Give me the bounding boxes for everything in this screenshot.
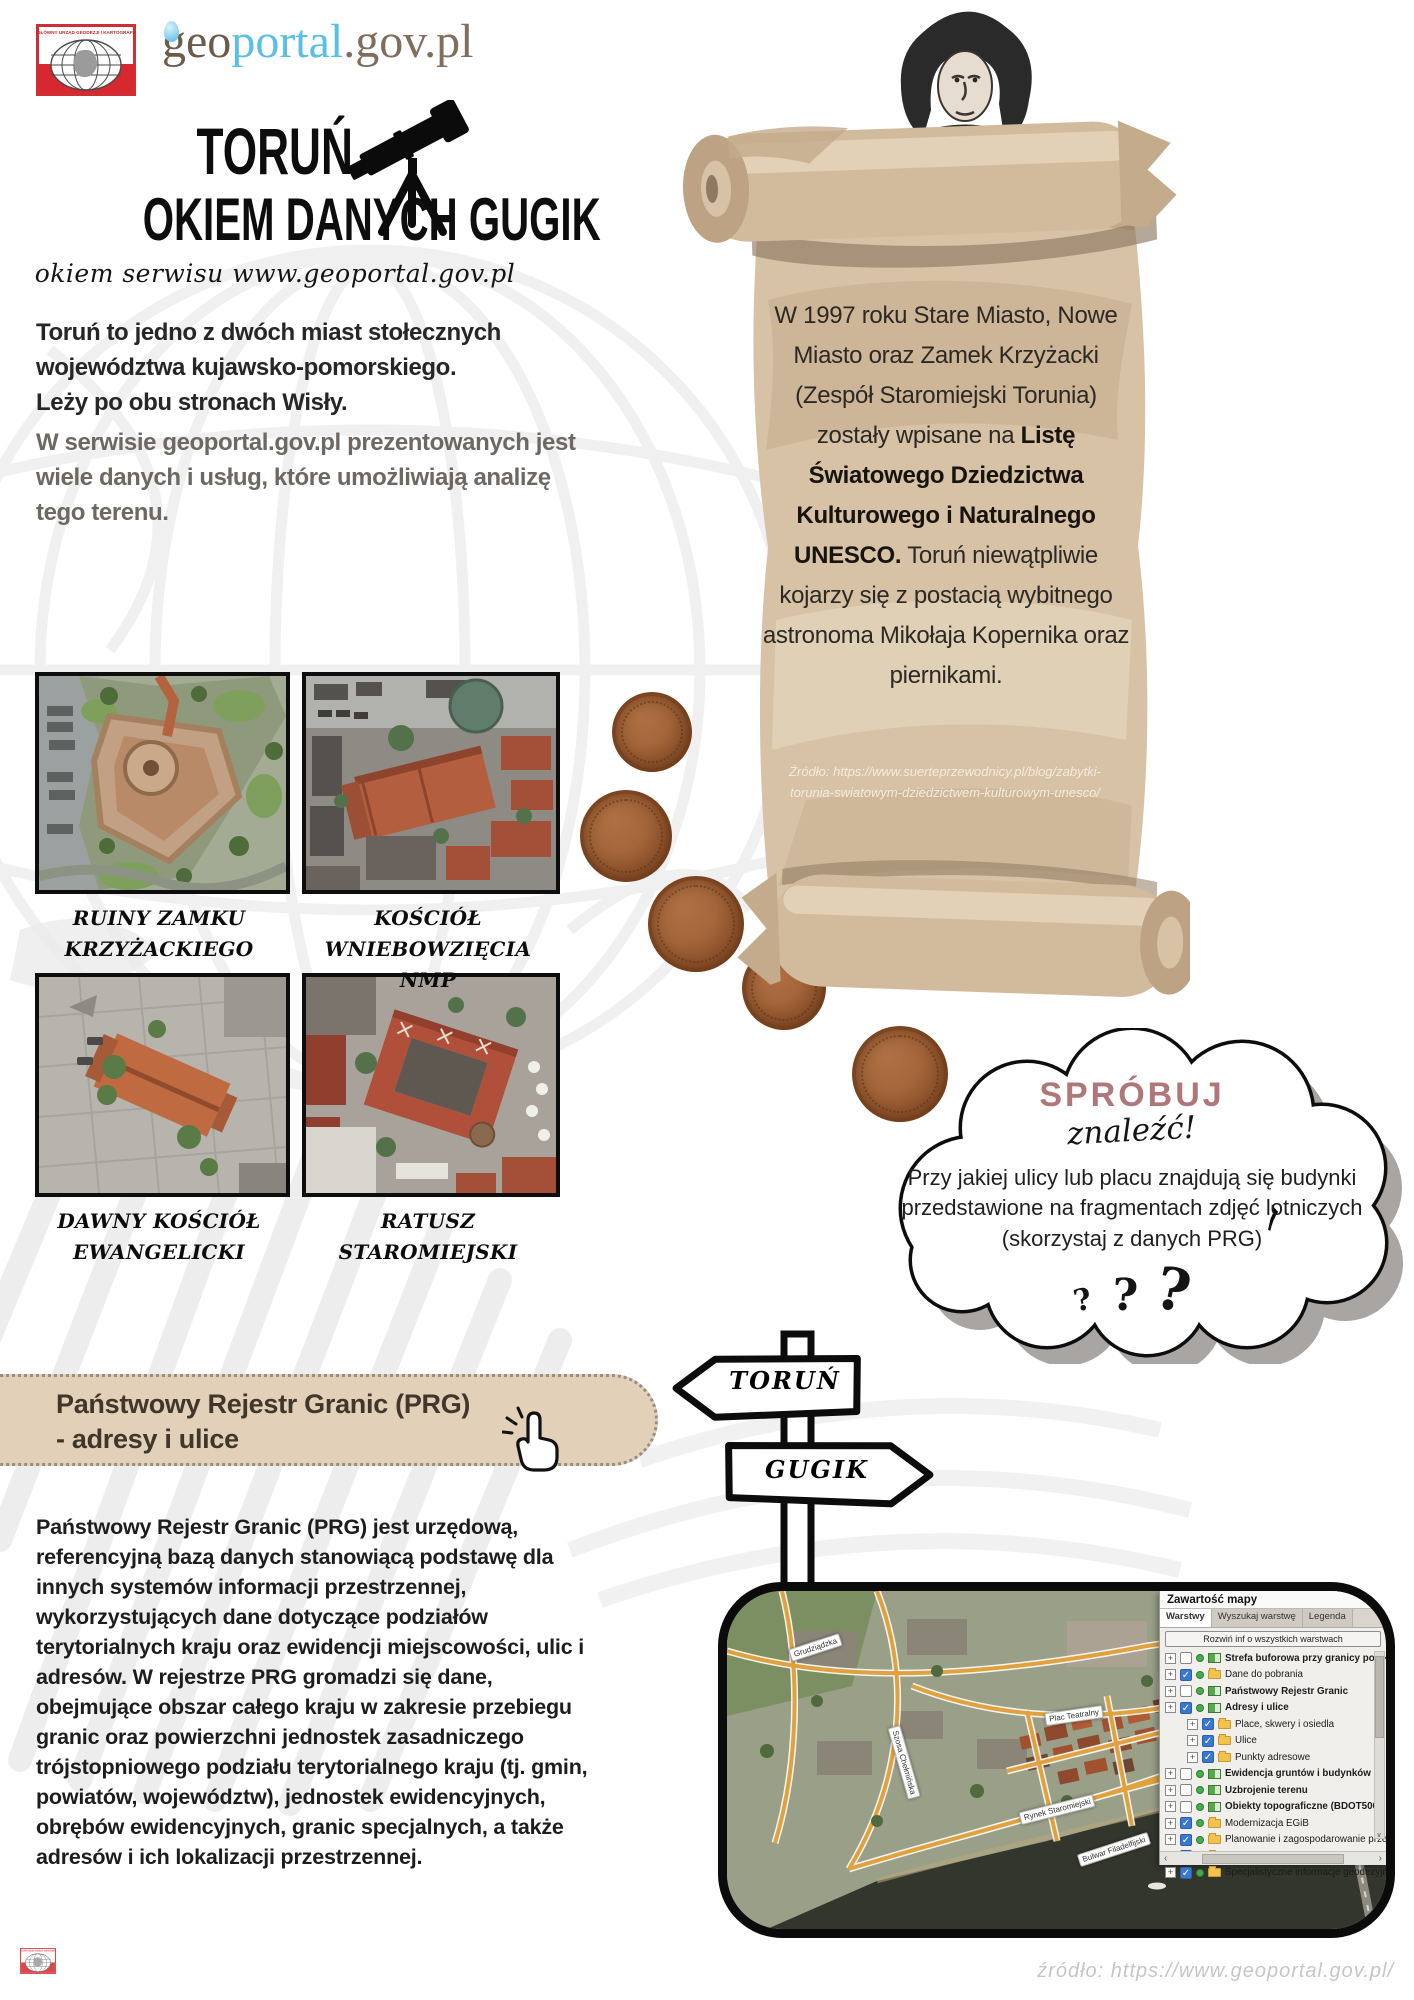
layer-label: Ewidencja gruntów i budynków bbox=[1225, 1768, 1371, 1779]
map-service-icon bbox=[1208, 1785, 1221, 1795]
layer-row[interactable]: +✓Punkty adresowe bbox=[1160, 1749, 1386, 1766]
status-dot-icon bbox=[1196, 1803, 1204, 1811]
layer-checkbox[interactable] bbox=[1180, 1784, 1192, 1796]
expander-icon[interactable]: + bbox=[1165, 1768, 1176, 1779]
map-screenshot: GrudziądzkaSzosa ChełmińskaPlac Teatraln… bbox=[718, 1582, 1395, 1938]
layer-label: Państwowy Rejestr Granic bbox=[1225, 1686, 1348, 1697]
folder-icon bbox=[1218, 1720, 1231, 1729]
scroll-right-icon[interactable]: › bbox=[1379, 1853, 1382, 1864]
infographic-page: GŁÓWNY URZĄD GEODEZJI I KARTOGRAFII geop… bbox=[0, 0, 1414, 2000]
map-service-icon bbox=[1208, 1653, 1221, 1663]
layer-checkbox[interactable]: ✓ bbox=[1202, 1735, 1214, 1747]
status-dot-icon bbox=[1196, 1770, 1204, 1778]
layer-row[interactable]: +✓Place, skwery i osiedla bbox=[1160, 1716, 1386, 1733]
aerial-photo-evangelical-church bbox=[35, 973, 290, 1197]
folder-icon bbox=[1208, 1835, 1221, 1844]
tab-wyszukaj-warstwe[interactable]: Wyszukaj warstwę bbox=[1212, 1609, 1303, 1627]
folder-icon bbox=[1208, 1868, 1221, 1877]
layer-row[interactable]: +Obiekty topograficzne (BDOT500) bbox=[1160, 1799, 1386, 1816]
intro-paragraph-1: Toruń to jedno z dwóch miast stołecznych… bbox=[36, 316, 596, 420]
aerial-photo-town-hall bbox=[302, 973, 560, 1197]
layer-checkbox[interactable]: ✓ bbox=[1202, 1718, 1214, 1730]
geoportal-wordmark: geoportal.gov.pl bbox=[162, 14, 1414, 69]
layer-row[interactable]: +Ewidencja gruntów i budynków bbox=[1160, 1766, 1386, 1783]
status-dot-icon bbox=[1196, 1671, 1204, 1679]
scroll-down-icon[interactable]: ∨ bbox=[1375, 1831, 1383, 1839]
aerial-photo-church-nmp bbox=[302, 672, 560, 894]
layer-checkbox[interactable] bbox=[1180, 1768, 1192, 1780]
expander-icon[interactable]: + bbox=[1165, 1818, 1176, 1829]
layer-label: Modernizacja EGiB bbox=[1225, 1818, 1309, 1829]
photo-caption-nmp: KOŚCIÓŁ WNIEBOWZIĘCIA NMP bbox=[296, 903, 560, 996]
scrollbar-thumb[interactable] bbox=[1202, 1854, 1344, 1864]
status-dot-icon bbox=[1196, 1819, 1204, 1827]
expander-icon[interactable]: + bbox=[1165, 1867, 1176, 1878]
expander-icon[interactable]: + bbox=[1165, 1653, 1176, 1664]
map-service-icon bbox=[1208, 1769, 1221, 1779]
title-line-1: TORUŃ bbox=[197, 118, 353, 185]
telescope-icon bbox=[342, 100, 492, 240]
scroll-left-icon[interactable]: ‹ bbox=[1164, 1853, 1167, 1864]
layer-row[interactable]: +✓Adresy i ulice bbox=[1160, 1700, 1386, 1717]
layer-checkbox[interactable]: ✓ bbox=[1180, 1669, 1192, 1681]
photo-caption-town-hall: RATUSZ STAROMIEJSKI bbox=[296, 1206, 560, 1268]
layer-row[interactable]: +Strefa buforowa przy granicy polsko-bia… bbox=[1160, 1650, 1386, 1667]
brand-portal: portal bbox=[231, 15, 343, 68]
status-dot-icon bbox=[1196, 1836, 1204, 1844]
gugik-logo-small bbox=[20, 1948, 56, 1974]
photo-caption-evangelical: DAWNY KOŚCIÓŁ EWANGELICKI bbox=[29, 1206, 289, 1268]
layer-label: Obiekty topograficzne (BDOT500) bbox=[1225, 1801, 1381, 1812]
try-subtitle: znaleźć! bbox=[1067, 1110, 1198, 1153]
horizontal-scrollbar[interactable]: ‹ › bbox=[1160, 1851, 1386, 1865]
layer-checkbox[interactable] bbox=[1180, 1801, 1192, 1813]
expander-icon[interactable]: + bbox=[1187, 1719, 1198, 1730]
question-mark-icon: ? bbox=[1149, 1253, 1196, 1327]
folder-icon bbox=[1208, 1819, 1221, 1828]
folder-icon bbox=[1218, 1753, 1231, 1762]
click-hand-icon bbox=[502, 1406, 562, 1472]
layer-label: Adresy i ulice bbox=[1225, 1702, 1289, 1713]
map-service-icon bbox=[1208, 1802, 1221, 1812]
layer-row[interactable]: +✓Planowanie i zagospodarowanie przestrz… bbox=[1160, 1832, 1386, 1849]
layer-label: Ulice bbox=[1235, 1735, 1257, 1746]
tab-legenda[interactable]: Legenda bbox=[1303, 1609, 1353, 1627]
layer-row[interactable]: +✓Specjalistyczne informacje geodezyjne bbox=[1160, 1865, 1386, 1882]
prg-banner-line-1: Państwowy Rejestr Granic (PRG) bbox=[56, 1387, 470, 1422]
status-dot-icon bbox=[1196, 1654, 1204, 1662]
expander-icon[interactable]: + bbox=[1165, 1785, 1176, 1796]
layer-row[interactable]: +✓Dane do pobrania bbox=[1160, 1667, 1386, 1684]
footer-source-note: źródło: https://www.geoportal.gov.pl/ bbox=[874, 1960, 1394, 1983]
layer-checkbox[interactable]: ✓ bbox=[1180, 1702, 1192, 1714]
layer-label: Uzbrojenie terenu bbox=[1225, 1785, 1308, 1796]
tab-warstwy[interactable]: Warstwy bbox=[1160, 1609, 1212, 1627]
water-drop-icon bbox=[164, 21, 179, 42]
signpost-bottom-label: GUGIK bbox=[752, 1455, 882, 1484]
status-dot-icon bbox=[1196, 1704, 1204, 1712]
status-dot-icon bbox=[1196, 1786, 1204, 1794]
expander-icon[interactable]: + bbox=[1187, 1752, 1198, 1763]
layer-label: Specjalistyczne informacje geodezyjne bbox=[1225, 1867, 1386, 1878]
layer-row[interactable]: +✓Ulice bbox=[1160, 1733, 1386, 1750]
folder-icon bbox=[1208, 1670, 1221, 1679]
layer-row[interactable]: +Uzbrojenie terenu bbox=[1160, 1782, 1386, 1799]
scroll-source-note: Źródło: https://www.suerteprzewodnicy.pl… bbox=[775, 762, 1115, 804]
status-dot-icon bbox=[1196, 1869, 1204, 1877]
layer-label: Strefa buforowa przy granicy polsko-biał… bbox=[1225, 1653, 1386, 1664]
scroll-paragraph: W 1997 roku Stare Miasto, Nowe Miasto or… bbox=[762, 296, 1130, 696]
layer-label: Punkty adresowe bbox=[1235, 1752, 1310, 1763]
layer-checkbox[interactable] bbox=[1180, 1685, 1192, 1697]
question-mark-icon: ? bbox=[1110, 1269, 1139, 1322]
layer-label: Dane do pobrania bbox=[1225, 1669, 1303, 1680]
scrollbar-thumb[interactable] bbox=[1375, 1656, 1384, 1738]
layer-row[interactable]: +✓Modernizacja EGiB bbox=[1160, 1815, 1386, 1832]
layer-list: +Strefa buforowa przy granicy polsko-bia… bbox=[1160, 1650, 1386, 1881]
map-service-icon bbox=[1208, 1686, 1221, 1696]
expander-icon[interactable]: + bbox=[1165, 1834, 1176, 1845]
panel-title: Zawartość mapy bbox=[1160, 1591, 1386, 1608]
try-title: SPRÓBUJ bbox=[892, 1076, 1372, 1115]
status-dot-icon bbox=[1196, 1687, 1204, 1695]
try-question: Przy jakiej ulicy lub placu znajdują się… bbox=[892, 1163, 1372, 1254]
expander-icon[interactable]: + bbox=[1165, 1801, 1176, 1812]
expander-icon[interactable]: + bbox=[1165, 1702, 1176, 1713]
prg-banner-line-2: - adresy i ulice bbox=[56, 1422, 470, 1457]
layer-checkbox[interactable]: ✓ bbox=[1180, 1834, 1192, 1846]
intro-paragraph-2: W serwisie geoportal.gov.pl prezentowany… bbox=[36, 426, 596, 530]
layer-row[interactable]: +Państwowy Rejestr Granic bbox=[1160, 1683, 1386, 1700]
layer-checkbox[interactable]: ✓ bbox=[1202, 1751, 1214, 1763]
map-service-icon bbox=[1208, 1703, 1221, 1713]
expander-icon[interactable]: + bbox=[1165, 1669, 1176, 1680]
vertical-scrollbar[interactable]: ∨ bbox=[1374, 1651, 1385, 1839]
aerial-photo-castle-ruins bbox=[35, 672, 290, 894]
gugik-logo bbox=[36, 24, 136, 96]
layer-checkbox[interactable] bbox=[1180, 1652, 1192, 1664]
question-marks: ? ? ? bbox=[892, 1256, 1372, 1324]
photo-caption-castle: RUINY ZAMKU KRZYŻACKIEGO bbox=[29, 903, 289, 965]
question-mark-icon: ? bbox=[1070, 1282, 1094, 1320]
subtitle: okiem serwisu www.geoportal.gov.pl bbox=[30, 259, 520, 288]
expand-all-button[interactable]: Rozwiń inf o wszystkich warstwach bbox=[1165, 1631, 1381, 1647]
layer-checkbox[interactable]: ✓ bbox=[1180, 1867, 1192, 1879]
signpost-top-label: TORUŃ bbox=[720, 1366, 850, 1395]
expander-icon[interactable]: + bbox=[1165, 1686, 1176, 1697]
prg-paragraph: Państwowy Rejestr Granic (PRG) jest urzę… bbox=[36, 1512, 611, 1872]
layer-checkbox[interactable]: ✓ bbox=[1180, 1817, 1192, 1829]
brand-suffix: .gov.pl bbox=[343, 15, 473, 68]
layer-label: Planowanie i zagospodarowanie przestrzen… bbox=[1225, 1834, 1386, 1845]
panel-tabs: Warstwy Wyszukaj warstwę Legenda bbox=[1160, 1608, 1386, 1628]
map-layers-panel: Zawartość mapy Warstwy Wyszukaj warstwę … bbox=[1159, 1591, 1386, 1865]
try-cloud-bubble: SPRÓBUJ znaleźć! Przy jakiej ulicy lub p… bbox=[852, 1028, 1414, 1364]
folder-icon bbox=[1218, 1736, 1231, 1745]
expander-icon[interactable]: + bbox=[1187, 1735, 1198, 1746]
layer-label: Place, skwery i osiedla bbox=[1235, 1719, 1334, 1730]
